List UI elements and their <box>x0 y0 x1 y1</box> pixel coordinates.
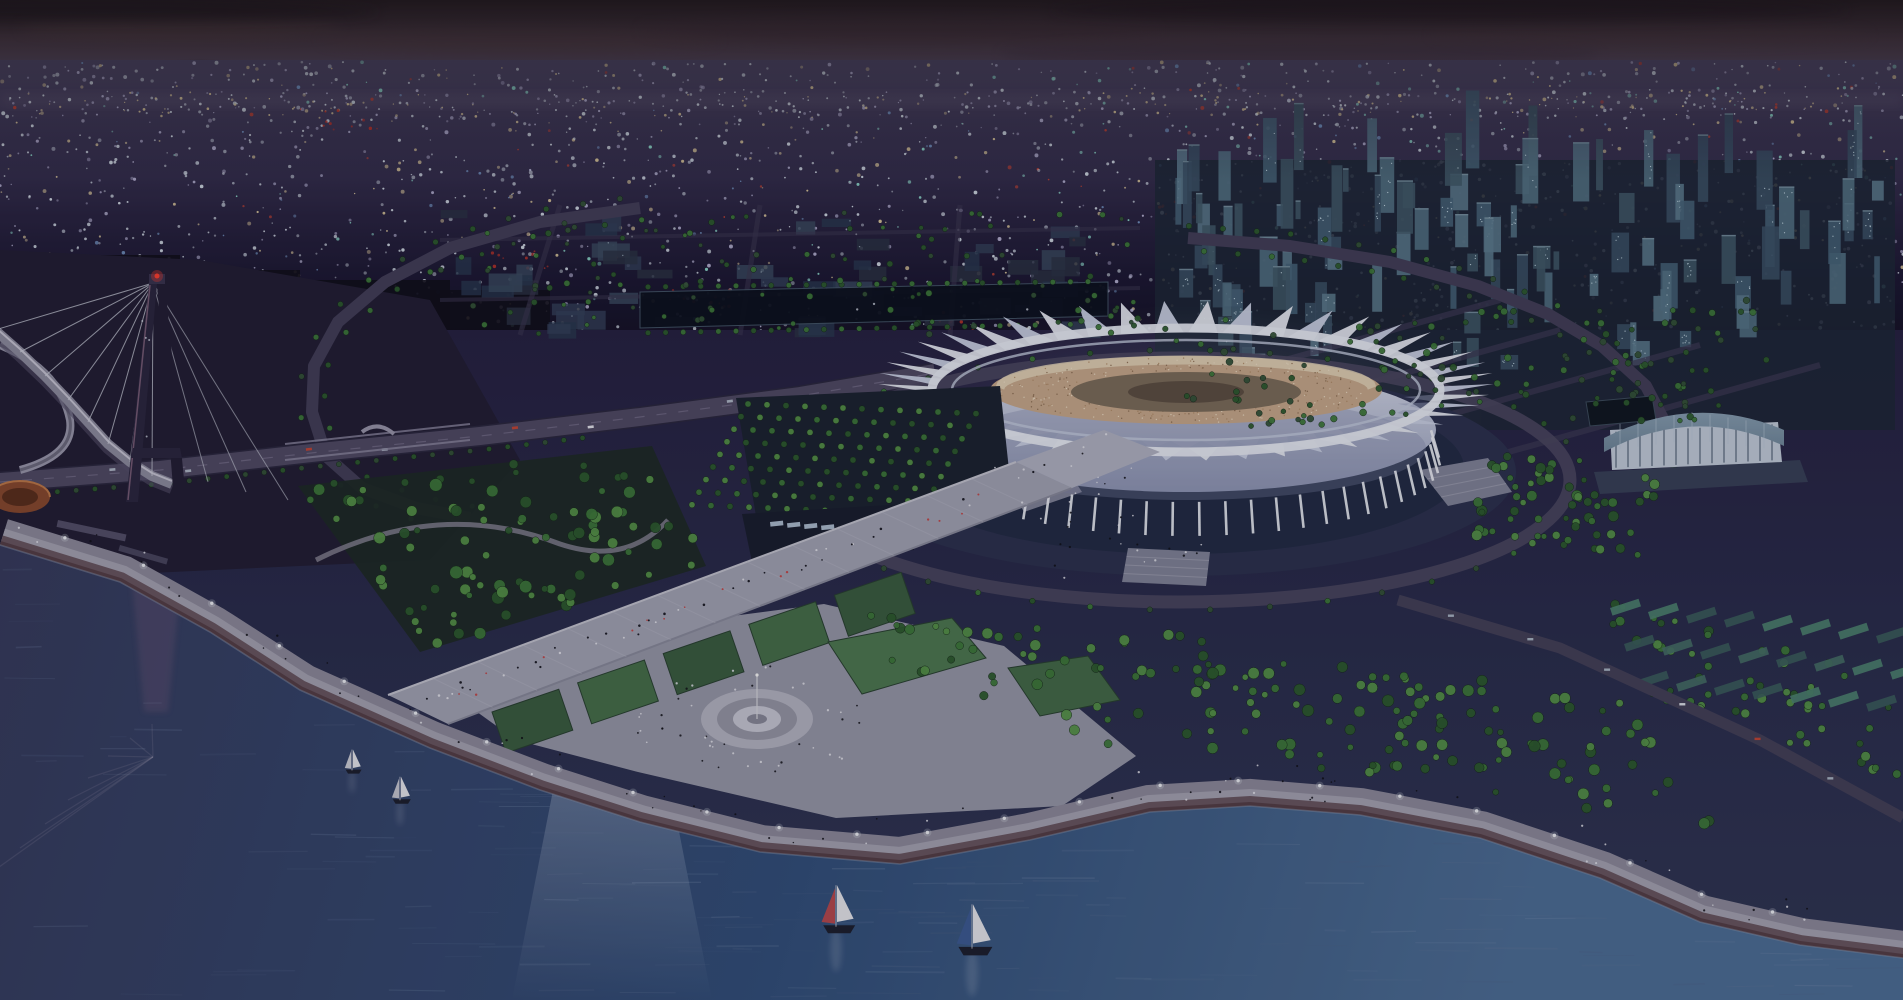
rendered-scene <box>0 0 1903 1000</box>
stadium-waterfront-aerial-hero-image <box>0 0 1903 1000</box>
dark-overlay <box>0 0 1903 1000</box>
